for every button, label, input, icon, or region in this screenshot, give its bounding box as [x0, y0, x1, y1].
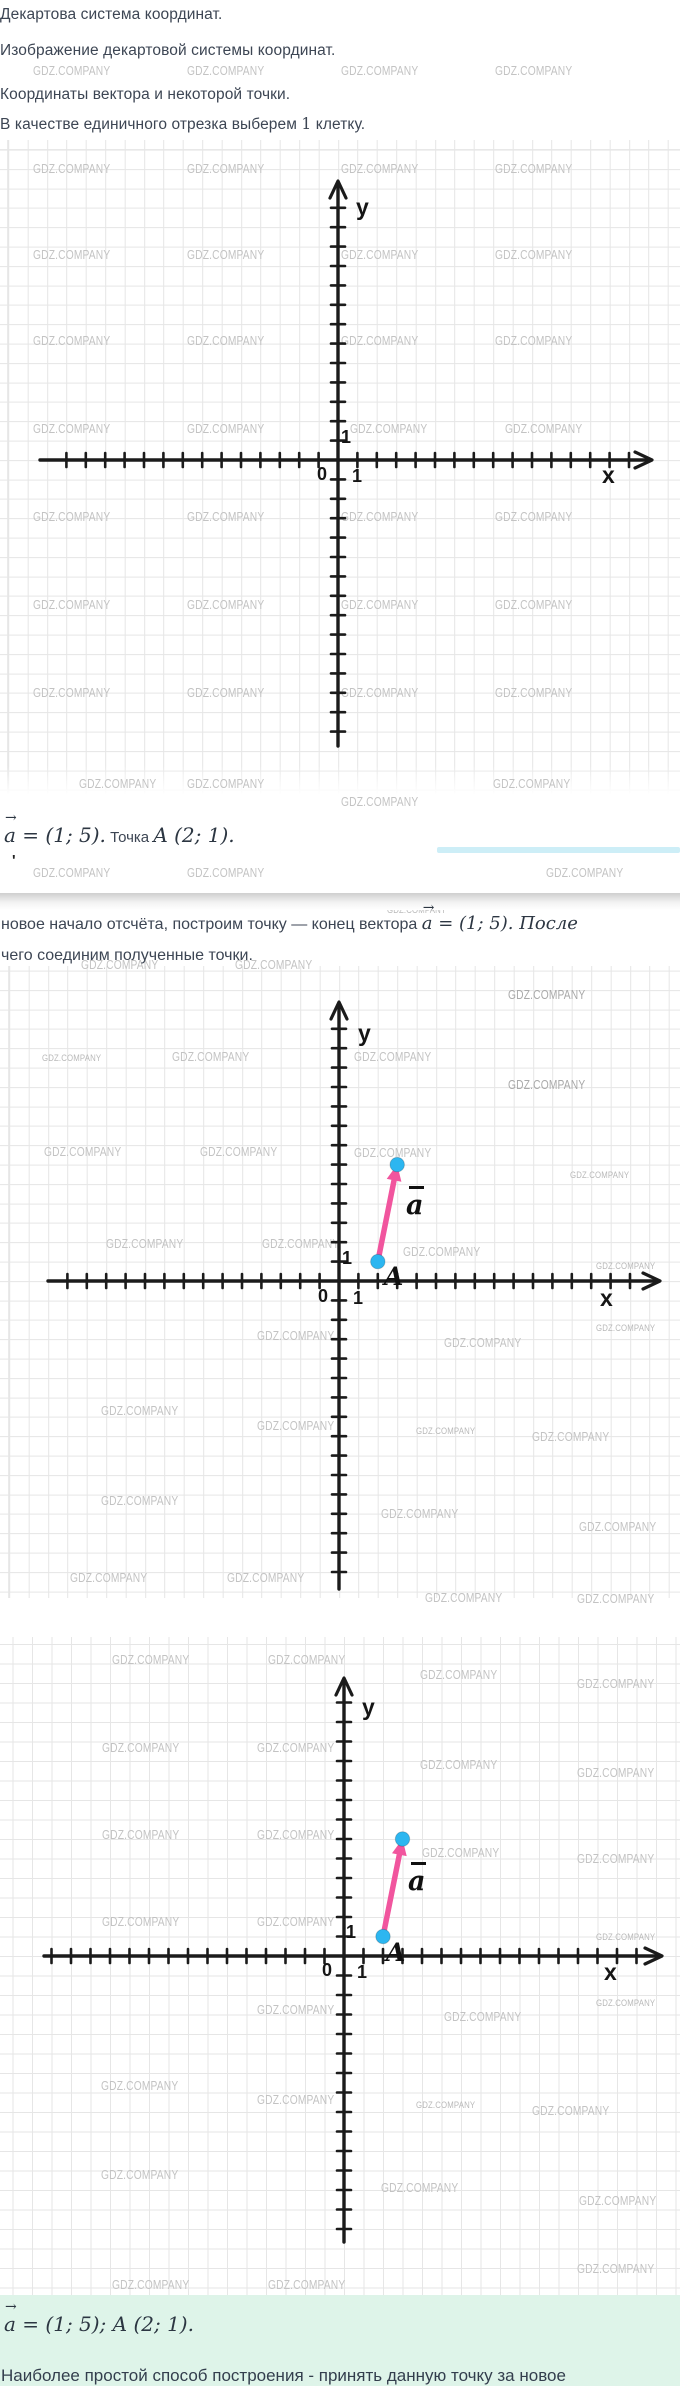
article-page: Декартова система координат. Изображение…	[0, 0, 680, 2386]
origin-label: 0	[317, 465, 327, 483]
origin-label: 0	[322, 1961, 332, 1979]
vector-arrow-icon: →	[5, 2299, 17, 2315]
x-axis-label: x	[600, 1287, 613, 1310]
result-math: →a = (1; 5); A (2; 1).	[4, 2312, 194, 2336]
y-unit-label: 1	[341, 428, 351, 446]
macron-bar	[409, 1186, 424, 1189]
plots-overlay	[0, 0, 680, 2386]
macron-bar	[411, 1862, 426, 1865]
footer-cut-text: Наиболее простой способ построения - при…	[1, 2366, 566, 2386]
x-axis-label: x	[604, 1961, 617, 1984]
origin-label: 0	[318, 1287, 328, 1305]
point-label-A: A	[386, 1940, 405, 1965]
x-axis-label: x	[602, 464, 615, 487]
vector-a-symbol: →a	[4, 2312, 16, 2336]
x-unit-label: 1	[357, 1963, 367, 1981]
vector-name-label: a	[408, 1868, 426, 1895]
x-unit-label: 1	[352, 467, 362, 485]
y-axis-label: y	[362, 1696, 375, 1719]
plot-line	[383, 1849, 401, 1937]
y-axis-label: y	[356, 196, 369, 219]
point-label-A: A	[384, 1264, 403, 1289]
data-point	[371, 1254, 385, 1268]
vector-name-label: a	[406, 1192, 424, 1219]
y-unit-label: 1	[346, 1923, 356, 1941]
y-axis-label: y	[358, 1022, 371, 1045]
data-point	[395, 1832, 409, 1846]
y-unit-label: 1	[342, 1249, 352, 1267]
data-point	[390, 1157, 404, 1171]
plot-line	[378, 1174, 395, 1261]
x-unit-label: 1	[353, 1289, 363, 1307]
